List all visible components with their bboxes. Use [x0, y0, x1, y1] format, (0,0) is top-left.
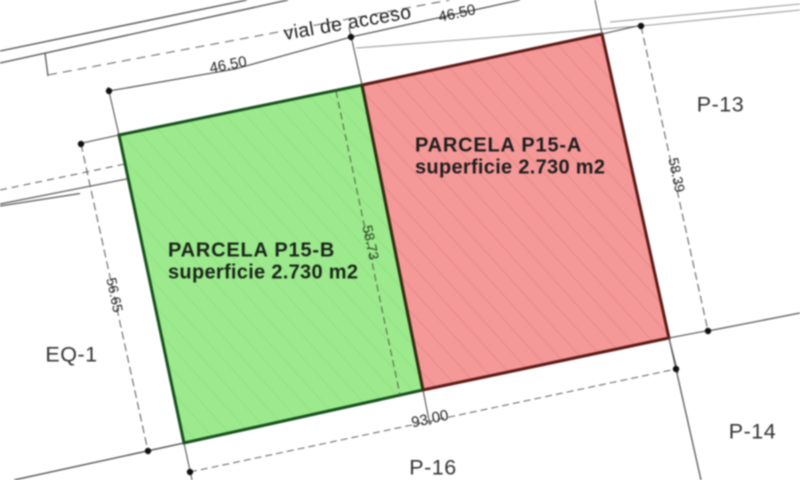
svg-text:EQ-1: EQ-1	[45, 343, 97, 367]
svg-text:PARCELA P15-A: PARCELA P15-A	[415, 135, 582, 157]
svg-text:P-13: P-13	[697, 93, 744, 117]
svg-text:P-14: P-14	[729, 420, 776, 444]
svg-text:PARCELA P15-B: PARCELA P15-B	[168, 240, 335, 262]
svg-text:superficie 2.730 m2: superficie 2.730 m2	[168, 262, 358, 284]
svg-text:P-16: P-16	[409, 456, 456, 480]
svg-text:superficie 2.730 m2: superficie 2.730 m2	[415, 157, 605, 179]
